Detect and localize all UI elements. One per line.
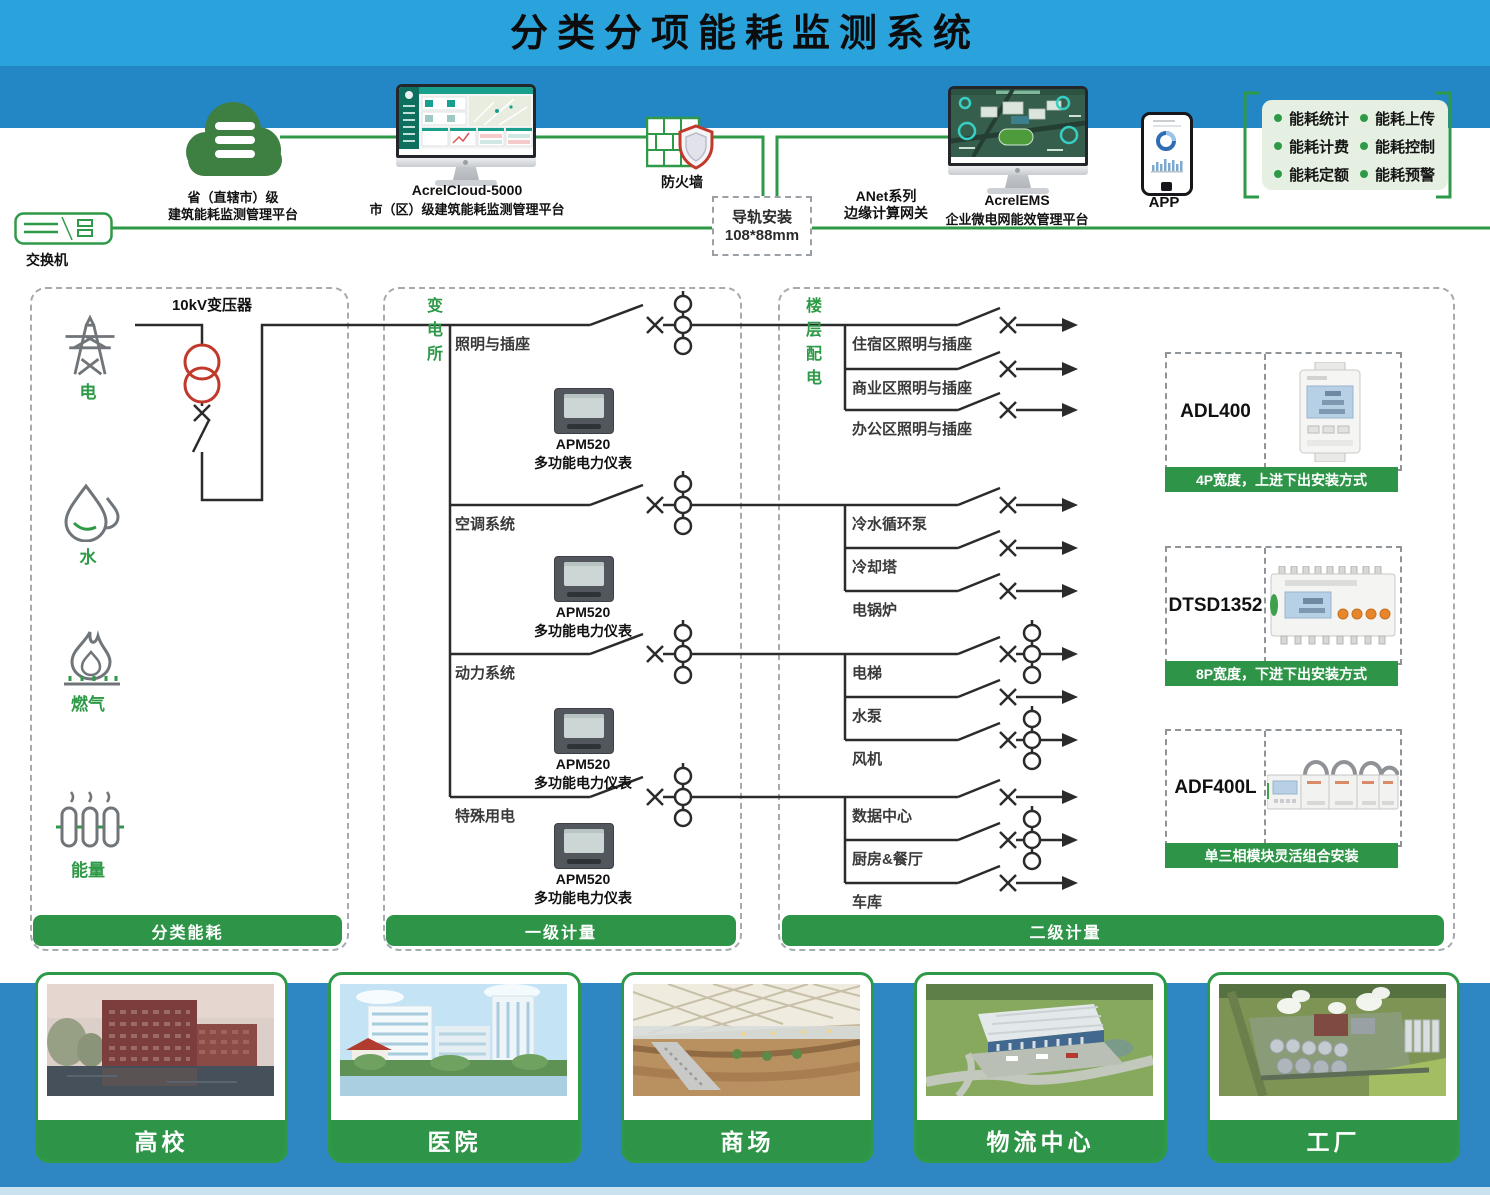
product-caption: 单三相模块灵活组合安装: [1165, 843, 1398, 868]
hospital-photo: [340, 984, 567, 1096]
energy-type-label: 能量: [48, 856, 128, 881]
branch-label: 动力系统: [455, 662, 515, 683]
feature-text: 能耗预警: [1375, 167, 1435, 184]
monitor2-subtitle: 企业微电网能效管理平台: [932, 209, 1102, 228]
floor-title: 楼层配电: [806, 292, 822, 388]
circuit-label: 住宿区照明与插座: [852, 333, 972, 354]
circuit-label: 电锅炉: [852, 599, 897, 620]
app-label: APP: [1138, 194, 1190, 211]
cloud-icon: [183, 98, 287, 184]
application-label: 高校: [38, 1120, 285, 1160]
din-rail-note: 导轨安装 108*88mm: [712, 196, 812, 256]
product-caption: 4P宽度，上进下出安装方式: [1165, 467, 1398, 492]
switch-label: 交换机: [14, 250, 126, 270]
feature-item: 能耗控制: [1360, 136, 1435, 157]
meter-model: APM520: [500, 756, 666, 772]
meter-model: APM520: [500, 871, 666, 887]
poster: 分类分项能耗监测系统: [0, 0, 1490, 1195]
gateway-label-line2: 边缘计算网关: [826, 203, 946, 223]
apm520-meter-image: [554, 823, 614, 869]
application-card-hospital: 医院: [328, 972, 581, 1163]
circuit-label: 电梯: [852, 662, 882, 683]
branch-label: 空调系统: [455, 513, 515, 534]
energy-type-label: 燃气: [48, 690, 128, 715]
circuit-label: 办公区照明与插座: [852, 418, 972, 439]
circuit-label: 商业区照明与插座: [852, 377, 972, 398]
water-icon: [60, 482, 124, 542]
monitor2-screen: [948, 86, 1088, 166]
gas-flame-icon: [60, 628, 124, 690]
circuit-label: 厨房&餐厅: [852, 848, 923, 869]
product-caption: 8P宽度，下进下出安装方式: [1165, 661, 1398, 686]
meter-desc: 多功能电力仪表: [500, 773, 666, 793]
transformer-label: 10kV变压器: [147, 294, 277, 315]
meter-desc: 多功能电力仪表: [500, 621, 666, 641]
feature-text: 能耗定额: [1289, 167, 1349, 184]
meter-model: APM520: [500, 436, 666, 452]
divider: [1264, 354, 1266, 469]
footer-secondary-metering: 二级计量: [782, 915, 1444, 946]
application-card-logistics: 物流中心: [914, 972, 1167, 1163]
bullet-icon: [1360, 170, 1368, 178]
application-card-university: 高校: [35, 972, 288, 1163]
energy-type-label: 电: [58, 378, 118, 403]
footer-band-light: [0, 1187, 1490, 1195]
circuit-label: 冷却塔: [852, 556, 897, 577]
feature-text: 能耗上传: [1375, 111, 1435, 128]
cloud-label-line2: 建筑能耗监测管理平台: [153, 204, 313, 223]
logistics-photo: [926, 984, 1153, 1096]
din-rail-line1: 导轨安装: [714, 206, 810, 227]
energy-type-label: 水: [58, 543, 118, 568]
feature-item: 能耗计费: [1274, 136, 1349, 157]
university-photo: [47, 984, 274, 1096]
adl400-meter-image: [1295, 362, 1365, 462]
arrow-heads: [1062, 318, 1078, 890]
bullet-icon: [1274, 170, 1282, 178]
app-phone-icon: [1141, 112, 1193, 196]
monitor2-title: AcrelEMS: [947, 192, 1087, 208]
monitor-acrelems: [948, 86, 1088, 194]
application-card-mall: 商场: [621, 972, 874, 1163]
bullet-icon: [1360, 142, 1368, 150]
circuit-label: 水泵: [852, 705, 882, 726]
product-model: ADL400: [1167, 354, 1264, 469]
adf400l-meter-image: [1267, 757, 1399, 817]
application-label: 商场: [624, 1120, 871, 1160]
circuit-label: 冷水循环泵: [852, 513, 927, 534]
apm520-meter-image: [554, 708, 614, 754]
feature-item: 能耗统计: [1274, 108, 1349, 129]
application-card-factory: 工厂: [1207, 972, 1460, 1163]
application-label: 工厂: [1210, 1120, 1457, 1160]
dtsd1352-meter-image: [1269, 566, 1399, 646]
circuit-label: 数据中心: [852, 805, 912, 826]
product-model: DTSD1352: [1167, 548, 1264, 663]
application-label: 物流中心: [917, 1120, 1164, 1160]
feature-text: 能耗计费: [1289, 139, 1349, 156]
heat-energy-icon: [56, 790, 124, 852]
product-box-dtsd1352: DTSD1352: [1165, 546, 1402, 665]
product-box-adl400: ADL400: [1165, 352, 1402, 471]
mall-photo: [633, 984, 860, 1096]
feature-item: 能耗上传: [1360, 108, 1435, 129]
monitor1-title: AcrelCloud-5000: [382, 182, 552, 198]
feature-text: 能耗控制: [1375, 139, 1435, 156]
divider: [1264, 731, 1266, 845]
product-model: ADF400L: [1167, 731, 1264, 845]
footer-classified: 分类能耗: [33, 915, 342, 946]
substation-title: 变电所: [427, 292, 443, 364]
feature-text: 能耗统计: [1289, 111, 1349, 128]
din-rail-line2: 108*88mm: [714, 227, 810, 244]
application-label: 医院: [331, 1120, 578, 1160]
footer-primary-metering: 一级计量: [386, 915, 736, 946]
firewall-label: 防火墙: [650, 172, 714, 192]
apm520-meter-image: [554, 556, 614, 602]
meter-desc: 多功能电力仪表: [500, 888, 666, 908]
branch-label: 照明与插座: [455, 333, 530, 354]
apm520-meter-image: [554, 388, 614, 434]
meter-model: APM520: [500, 604, 666, 620]
electricity-tower-icon: [52, 312, 128, 378]
monitor1-subtitle: 市（区）级建筑能耗监测管理平台: [352, 199, 582, 218]
switch-icon: [14, 212, 114, 246]
bullet-icon: [1274, 114, 1282, 122]
meter-desc: 多功能电力仪表: [500, 453, 666, 473]
divider: [1264, 548, 1266, 663]
feature-item: 能耗定额: [1274, 164, 1349, 185]
factory-photo: [1219, 984, 1446, 1096]
circuit-label: 风机: [852, 748, 882, 769]
product-box-adf400l: ADF400L: [1165, 729, 1402, 847]
bullet-icon: [1274, 142, 1282, 150]
monitor1-screen: [396, 84, 536, 158]
monitor-acrelcloud5000: [396, 84, 536, 186]
transformer-symbol: [185, 345, 219, 402]
firewall-icon: [646, 114, 718, 174]
circuit-label: 车库: [852, 891, 882, 912]
branch-label: 特殊用电: [455, 805, 515, 826]
bullet-icon: [1360, 114, 1368, 122]
feature-item: 能耗预警: [1360, 164, 1435, 185]
